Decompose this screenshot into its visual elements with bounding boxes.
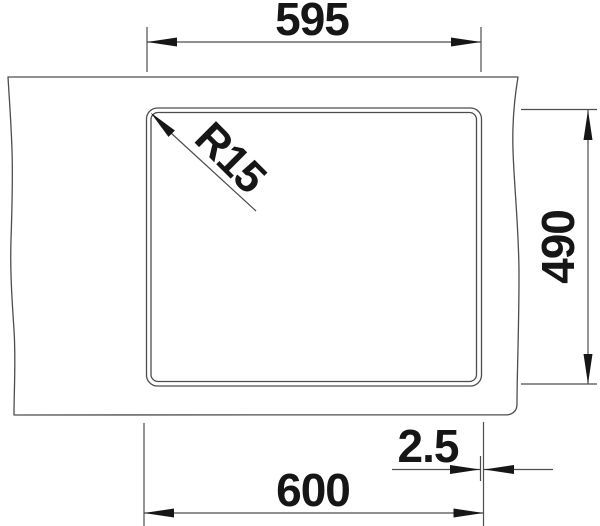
dim-arrowhead-left (147, 38, 177, 47)
countertop-outline (8, 77, 519, 415)
dim-arrowhead-bottom (584, 354, 593, 384)
dim-arrowhead-left (144, 509, 174, 518)
dim-label-top-width: 595 (275, 0, 349, 45)
dim-label-bottom-width: 600 (276, 464, 350, 516)
dim-arrowhead-right (451, 38, 481, 47)
dim-arrowhead-top (584, 110, 593, 140)
dimension-right-height: 490 (521, 110, 597, 385)
dim-label-right-height: 490 (532, 210, 584, 284)
dimension-rim-offset: 2.5 (392, 420, 553, 481)
dim-arrowhead-inward-left (484, 465, 514, 474)
sink-cutout-drawing: 595 490 600 2.5 R15 (0, 0, 600, 526)
technical-drawing-canvas: 595 490 600 2.5 R15 (0, 0, 600, 526)
dimension-top-width: 595 (147, 0, 481, 72)
dim-arrowhead-right (454, 509, 484, 518)
dim-label-rim-offset: 2.5 (398, 420, 459, 472)
